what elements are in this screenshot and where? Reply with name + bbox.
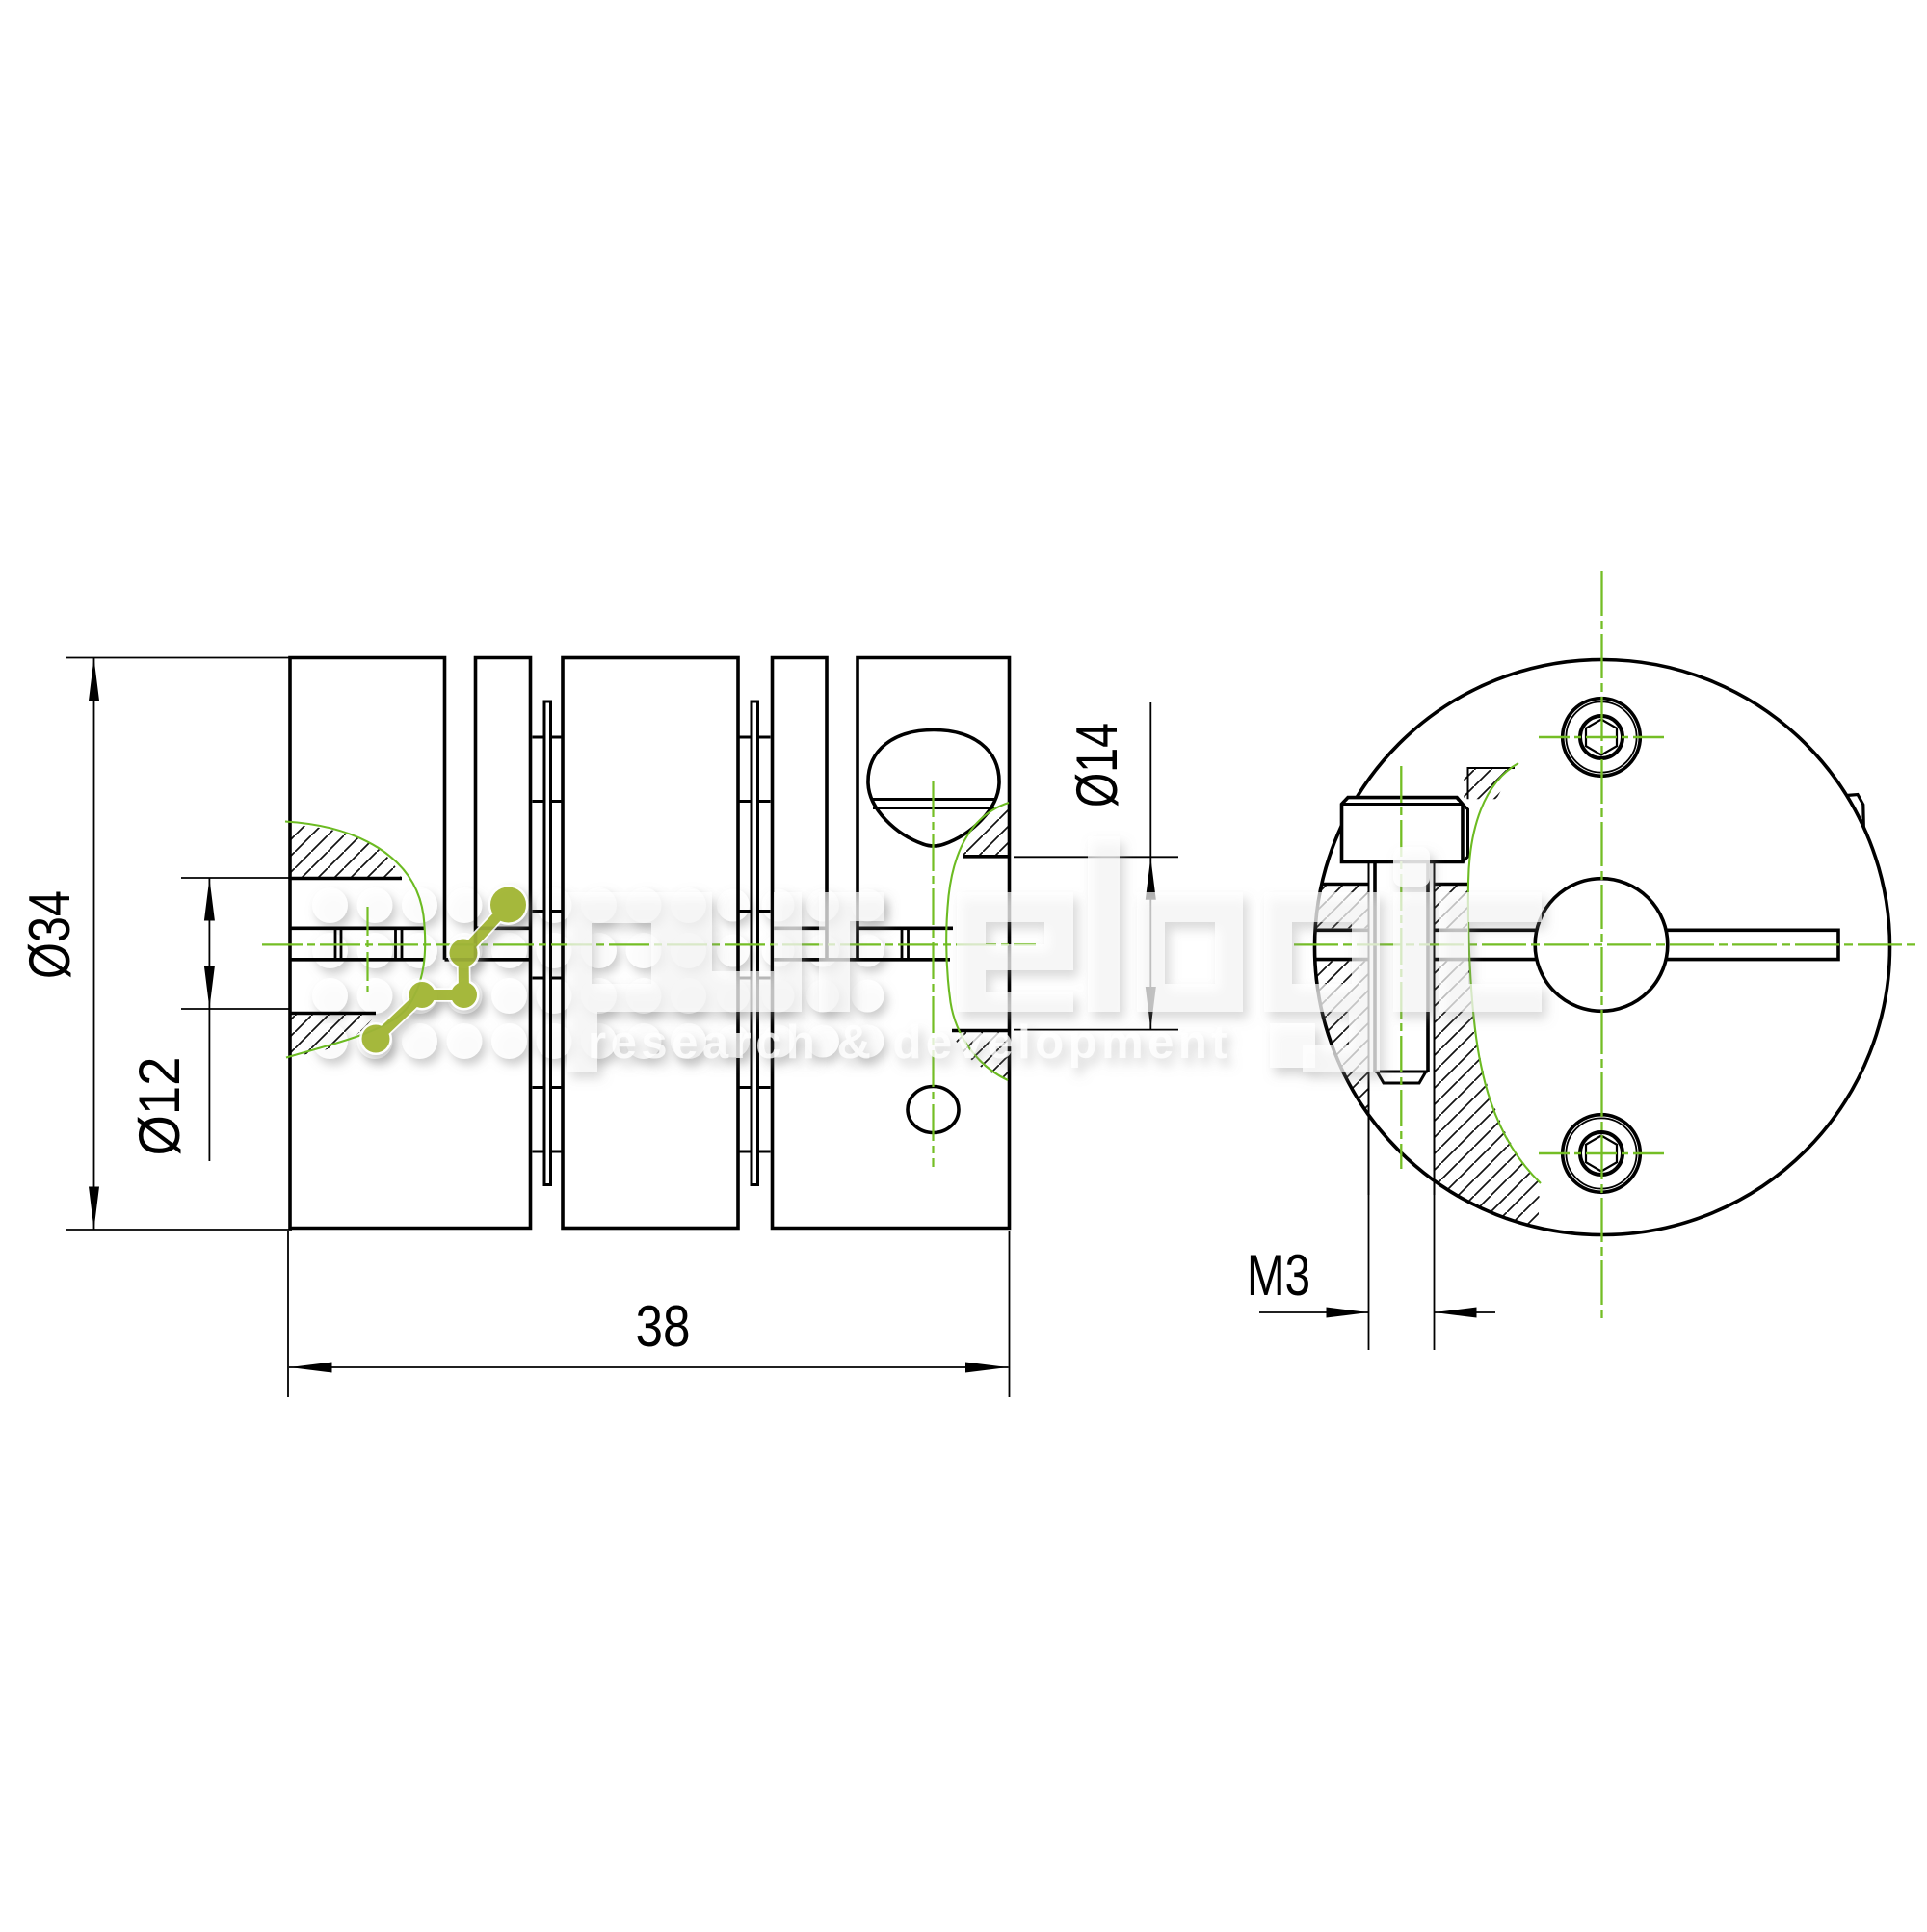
svg-text:Ø14: Ø14: [1065, 723, 1129, 807]
svg-text:38: 38: [636, 1294, 691, 1359]
svg-text:research & development: research & development: [588, 1017, 1231, 1069]
svg-text:Ø12: Ø12: [127, 1057, 192, 1156]
svg-text:Ø34: Ø34: [17, 890, 82, 979]
svg-text:M3: M3: [1247, 1243, 1310, 1308]
